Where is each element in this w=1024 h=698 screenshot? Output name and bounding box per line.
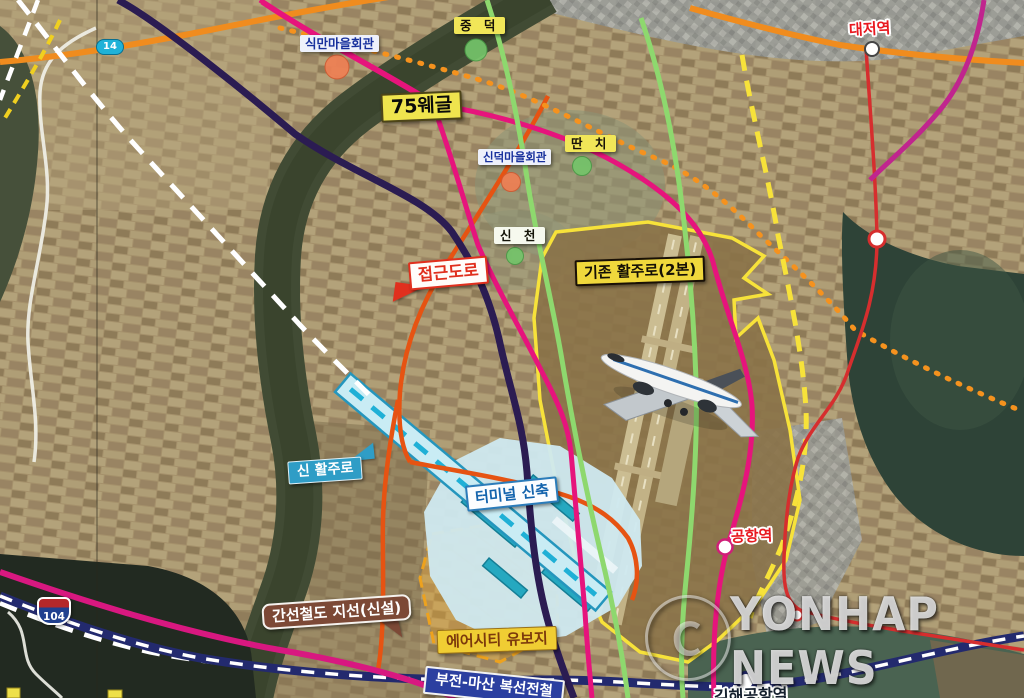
label-daejeo-station: 대저역 bbox=[849, 19, 891, 39]
label-sikman-hall: 식만마을회관 bbox=[300, 35, 379, 52]
label-existing-runway: 기존 활주로(2본) bbox=[575, 256, 706, 287]
route-shield-104: 104 bbox=[37, 597, 71, 625]
label-sindeok-hall: 신덕마을회관 bbox=[478, 149, 551, 165]
map-container: 식만마을회관 중 덕 75웨글 신덕마을회관 딴 치 신 천 접근도로 기존 활… bbox=[0, 0, 1024, 698]
label-airport-station: 공항역 bbox=[731, 526, 773, 546]
label-75-marker: 75웨글 bbox=[380, 90, 463, 123]
label-gimhae-airport-station: 김해공항역 bbox=[714, 685, 788, 698]
map-base bbox=[0, 0, 1024, 698]
label-jungdeok: 중 덕 bbox=[454, 17, 505, 34]
label-sincheon: 신 천 bbox=[494, 227, 545, 244]
label-ttanchi: 딴 치 bbox=[565, 135, 616, 152]
route-104-number: 104 bbox=[43, 612, 65, 623]
route-shield-14: 14 bbox=[96, 39, 124, 55]
route-14-number: 14 bbox=[103, 42, 117, 52]
label-aircity-reserve: 에어시티 유보지 bbox=[437, 626, 558, 654]
